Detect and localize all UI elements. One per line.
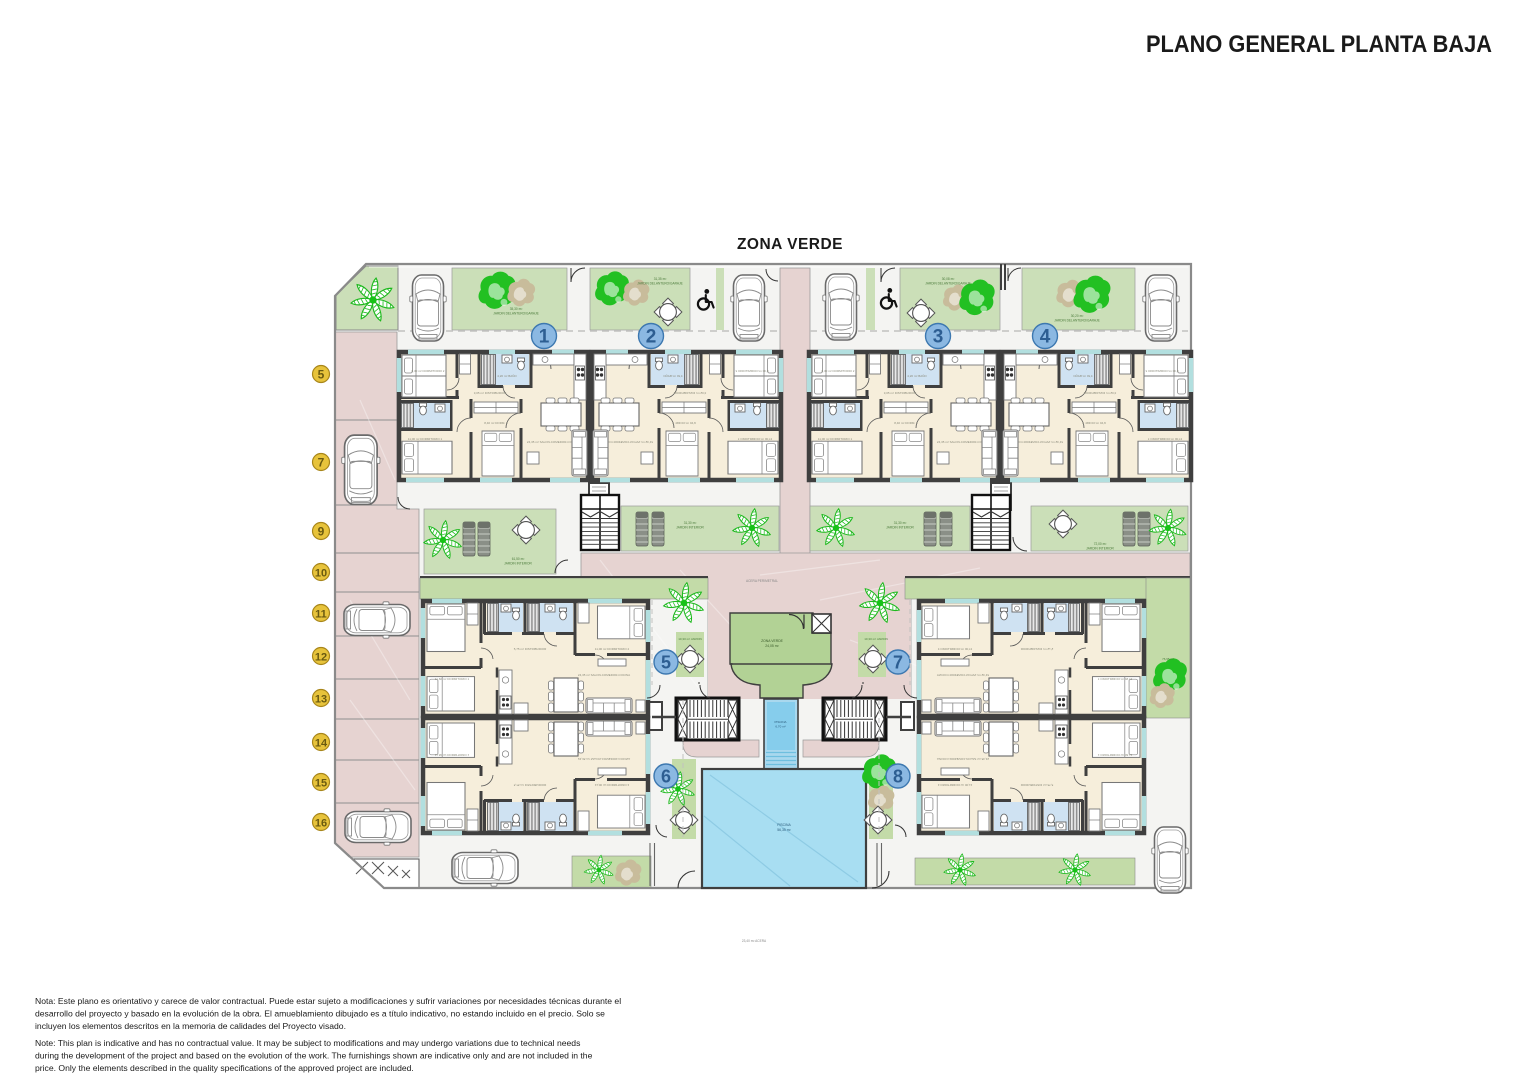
svg-text:24,05 m²: 24,05 m²	[765, 644, 779, 648]
svg-text:11,00 m² DORMITORIO 1: 11,00 m² DORMITORIO 1	[408, 437, 443, 441]
svg-text:2: 2	[646, 327, 657, 348]
svg-text:JARDIN DELANTERO/GARAJE: JARDIN DELANTERO/GARAJE	[493, 312, 539, 316]
svg-text:31,30 m²: 31,30 m²	[894, 521, 907, 525]
svg-text:ACERA PERIMETRAL: ACERA PERIMETRAL	[746, 579, 778, 583]
svg-text:31,35 m²: 31,35 m²	[654, 277, 667, 281]
svg-text:PISCINA: PISCINA	[777, 823, 791, 827]
svg-text:31,30 m²: 31,30 m²	[684, 521, 697, 525]
svg-text:JARDIN INTERIOR: JARDIN INTERIOR	[886, 526, 914, 530]
svg-text:price. Only the elements descr: price. Only the elements described in th…	[35, 1063, 414, 1073]
svg-text:5: 5	[318, 368, 325, 382]
svg-text:1: 1	[539, 327, 550, 348]
svg-text:13: 13	[315, 694, 327, 706]
svg-text:JARDIN DELANTERO/GARAJE: JARDIN DELANTERO/GARAJE	[1054, 319, 1100, 323]
svg-text:5,75 m² DISTRIBUIDOR: 5,75 m² DISTRIBUIDOR	[514, 647, 547, 651]
svg-text:11: 11	[315, 609, 327, 621]
svg-text:incluyen los elementos descrit: incluyen los elementos descritos en la m…	[35, 1021, 346, 1031]
svg-text:10,30 m² JARDIN: 10,30 m² JARDIN	[864, 637, 888, 641]
svg-text:30,08 m²: 30,08 m²	[942, 277, 955, 281]
svg-text:24,35 m² SALON-COMEDOR-COCINA: 24,35 m² SALON-COMEDOR-COCINA	[578, 673, 630, 677]
svg-text:4,20 m² BAÑO: 4,20 m² BAÑO	[497, 373, 517, 378]
svg-text:JARDIN INTERIOR: JARDIN INTERIOR	[1086, 547, 1114, 551]
svg-text:JARDIN INTERIOR: JARDIN INTERIOR	[504, 562, 532, 566]
svg-text:PLANO GENERAL PLANTA BAJA: PLANO GENERAL PLANTA BAJA	[1146, 31, 1492, 58]
svg-text:JARDIN INTERIOR: JARDIN INTERIOR	[676, 526, 704, 530]
svg-text:Nota: Este plano es orientativ: Nota: Este plano es orientativo y carece…	[35, 996, 621, 1006]
svg-text:4: 4	[1040, 327, 1051, 348]
svg-text:ZONA VERDE: ZONA VERDE	[761, 639, 784, 643]
svg-text:11,00 m² DORMITORIO 2: 11,00 m² DORMITORIO 2	[595, 647, 630, 651]
svg-text:3,05 m² DISTRIBUIDOR: 3,05 m² DISTRIBUIDOR	[474, 391, 507, 395]
svg-text:15: 15	[315, 778, 327, 790]
svg-text:6: 6	[661, 767, 671, 787]
svg-text:24,35 m² SALON-COMEDOR-COCINA: 24,35 m² SALON-COMEDOR-COCINA	[527, 440, 579, 444]
svg-text:5: 5	[661, 653, 671, 673]
svg-text:JARDIN DELANTERO/GARAJE: JARDIN DELANTERO/GARAJE	[637, 282, 683, 286]
svg-text:10: 10	[315, 568, 327, 580]
svg-text:9: 9	[318, 525, 325, 539]
svg-text:72,00 m²: 72,00 m²	[1094, 542, 1107, 546]
svg-text:30,20 m²: 30,20 m²	[1071, 314, 1084, 318]
svg-text:6,70 m²: 6,70 m²	[775, 725, 785, 729]
svg-text:3: 3	[933, 327, 944, 348]
svg-text:56,35 m²: 56,35 m²	[777, 828, 791, 832]
svg-text:ZONA VERDE: ZONA VERDE	[737, 236, 843, 253]
svg-text:11,60 m² DORMITORIO 1: 11,60 m² DORMITORIO 1	[435, 677, 470, 681]
svg-text:76,95 m²: 76,95 m²	[1162, 657, 1174, 661]
svg-text:8,40 m² DORM. 3: 8,40 m² DORM. 3	[484, 421, 508, 425]
svg-text:8,30 m² DORMITORIO 2: 8,30 m² DORMITORIO 2	[412, 369, 445, 373]
svg-text:PISCINA: PISCINA	[774, 720, 786, 724]
svg-text:23,40 m² ACERA: 23,40 m² ACERA	[742, 939, 767, 943]
svg-text:desarrollo del proyecto y basa: desarrollo del proyecto y basado en la e…	[35, 1009, 605, 1019]
svg-text:14: 14	[315, 738, 328, 750]
svg-text:during the development of the: during the development of the project an…	[35, 1051, 593, 1061]
svg-text:61,50 m²: 61,50 m²	[512, 557, 525, 561]
svg-text:12: 12	[315, 652, 327, 664]
svg-text:16: 16	[315, 818, 327, 830]
svg-text:Note: This plan is indicative: Note: This plan is indicative and has no…	[35, 1038, 580, 1048]
svg-text:7: 7	[318, 456, 325, 470]
svg-text:7: 7	[893, 653, 903, 673]
svg-text:8: 8	[893, 767, 903, 787]
svg-text:10,30 m² JARDIN: 10,30 m² JARDIN	[678, 637, 702, 641]
svg-text:35,30 m²: 35,30 m²	[510, 307, 523, 311]
svg-text:JARDIN DELANTERO/GARAJE: JARDIN DELANTERO/GARAJE	[925, 282, 971, 286]
